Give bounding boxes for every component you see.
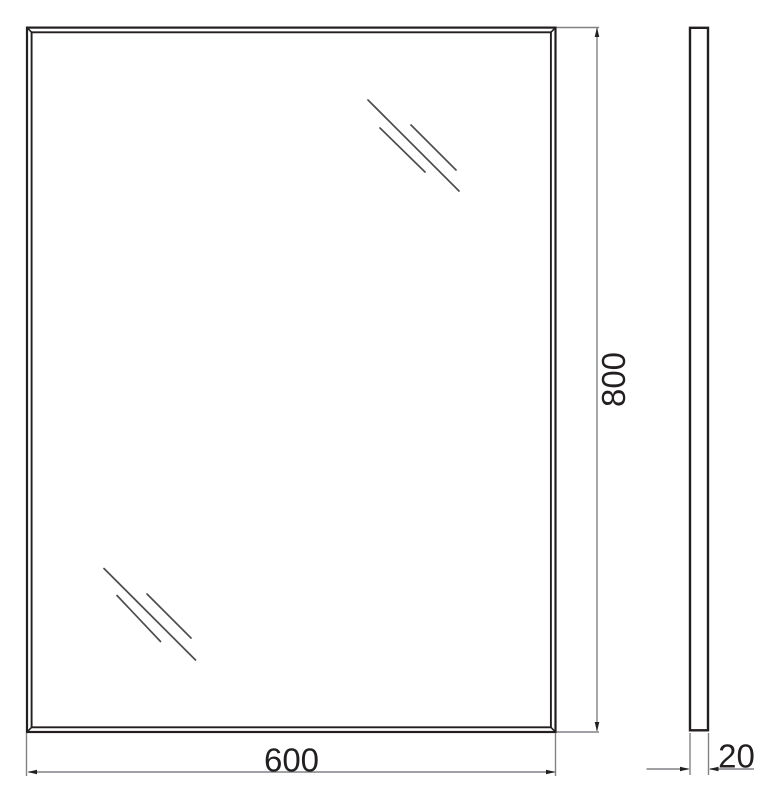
svg-text:20: 20 — [718, 737, 755, 774]
svg-text:600: 600 — [264, 742, 319, 779]
svg-text:800: 800 — [595, 352, 632, 407]
